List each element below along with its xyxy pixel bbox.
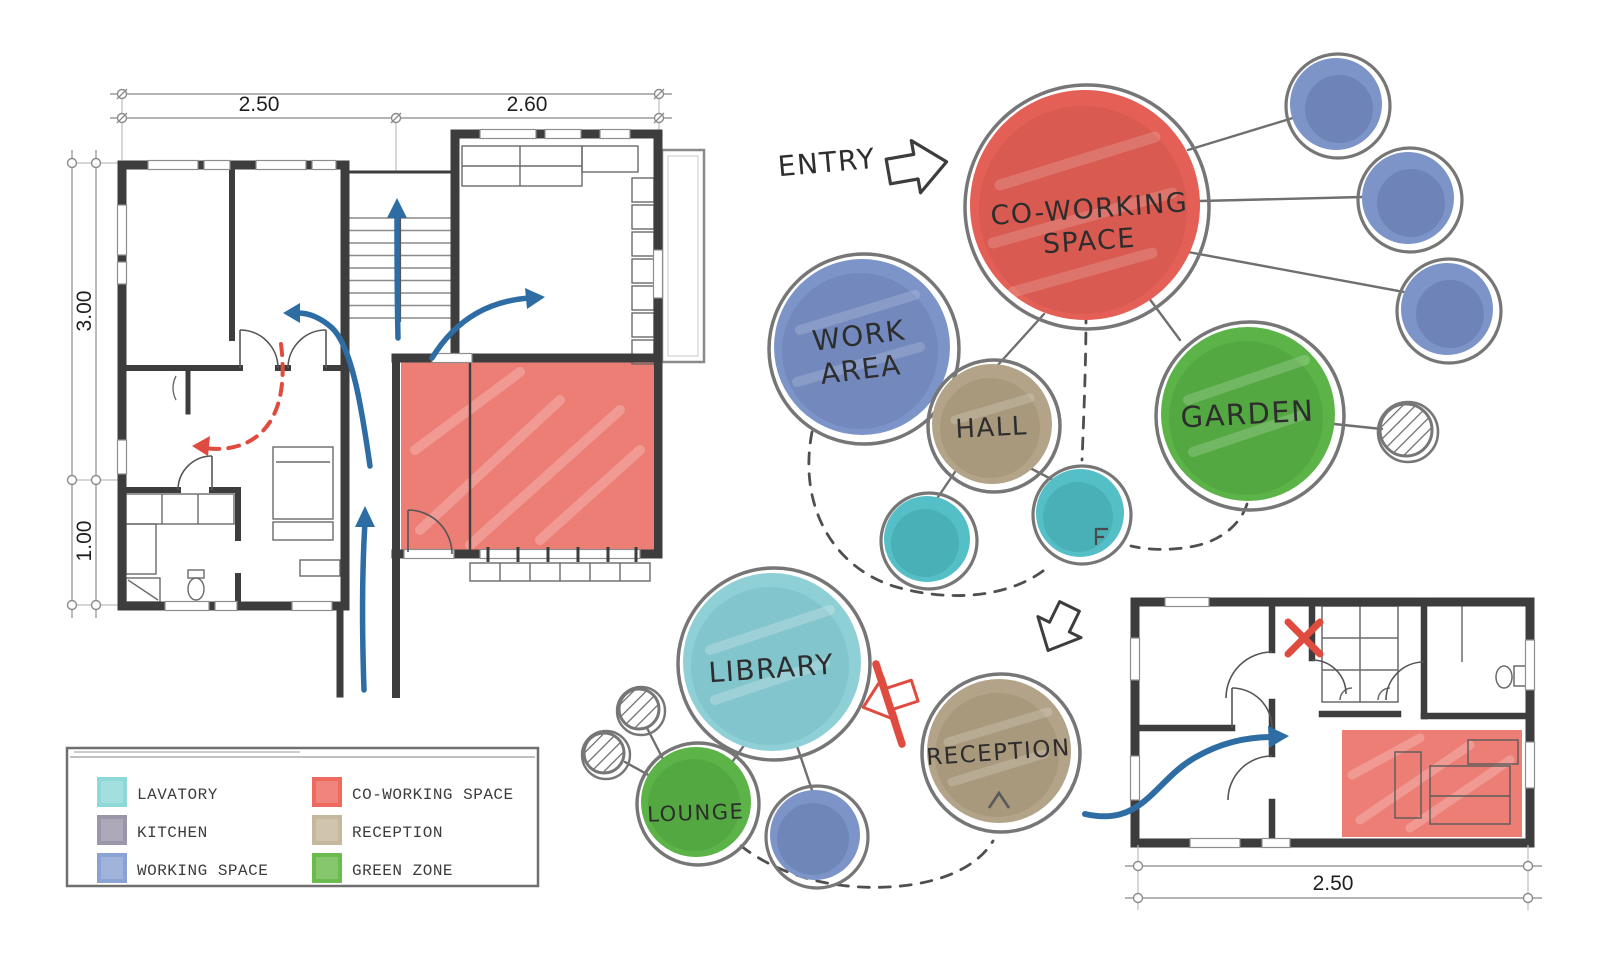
bubble-library: LIBRARY — [678, 568, 870, 760]
bubble-coworking: CO-WORKING SPACE — [965, 85, 1209, 329]
dimension-left: 3.00 1.00 — [68, 150, 101, 618]
bubble-lounge-label: LOUNGE — [647, 799, 745, 826]
legend-label-reception: RECEPTION — [352, 824, 443, 842]
legend-label-working-space: WORKING SPACE — [137, 862, 268, 880]
bubble-coworking-label-line2: SPACE — [1042, 223, 1137, 260]
legend-label-coworking: CO-WORKING SPACE — [352, 786, 514, 804]
dim-top-left-label: 2.50 — [239, 93, 280, 116]
coworking-zone-lower — [1342, 730, 1522, 837]
bubble-lounge: LOUNGE — [637, 743, 759, 865]
bubble-hall-label: HALL — [955, 411, 1029, 445]
hatched-bubble-garden-side — [1378, 402, 1438, 462]
red-dashed-route — [192, 344, 283, 456]
bubble-lavatory-1 — [881, 493, 977, 589]
flow-arrow-lower — [1085, 726, 1289, 816]
floor-plan-lower: 2.50 — [1085, 598, 1542, 911]
bubble-lavatory-2 — [1033, 466, 1131, 564]
entry-label: ENTRY — [777, 142, 878, 183]
terrace-outline — [662, 150, 704, 362]
down-arrow-icon — [1026, 596, 1091, 661]
bubble-reception: RECEPTION — [922, 674, 1080, 832]
bubble-working-satellite-3 — [1397, 259, 1501, 363]
bubble-garden: GARDEN — [1156, 322, 1344, 510]
legend-label-lavatory: LAVATORY — [137, 786, 218, 804]
legend: LAVATORY KITCHEN WORKING SPACE CO-WORKIN… — [67, 748, 538, 886]
bubble-working-small — [766, 786, 868, 888]
bubble-hall: HALL — [928, 360, 1060, 492]
dim-bottom-label: 2.50 — [1313, 872, 1354, 895]
no-entry-icon — [856, 664, 922, 744]
dimension-top: 2.50 2.60 — [110, 89, 672, 123]
dim-left-lower-label: 1.00 — [73, 521, 96, 562]
bubble-working-satellite-1 — [1286, 54, 1390, 158]
dimension-bottom: 2.50 — [1125, 845, 1542, 910]
hatched-bubble-lounge-1 — [617, 687, 665, 735]
floor-plan-upper: 2.50 2.60 3.00 1.00 — [68, 89, 705, 694]
concept-sketch-canvas: 2.50 2.60 3.00 1.00 — [0, 0, 1600, 960]
hatched-bubble-lounge-2 — [582, 731, 630, 779]
dim-top-right-label: 2.60 — [507, 93, 548, 116]
bubble-garden-label: GARDEN — [1180, 394, 1315, 435]
bubble-working-satellite-2 — [1358, 148, 1462, 252]
legend-label-kitchen: KITCHEN — [137, 824, 208, 842]
legend-label-green-zone: GREEN ZONE — [352, 862, 453, 880]
entry-arrow-icon — [884, 135, 951, 197]
dim-left-upper-label: 3.00 — [73, 291, 96, 332]
